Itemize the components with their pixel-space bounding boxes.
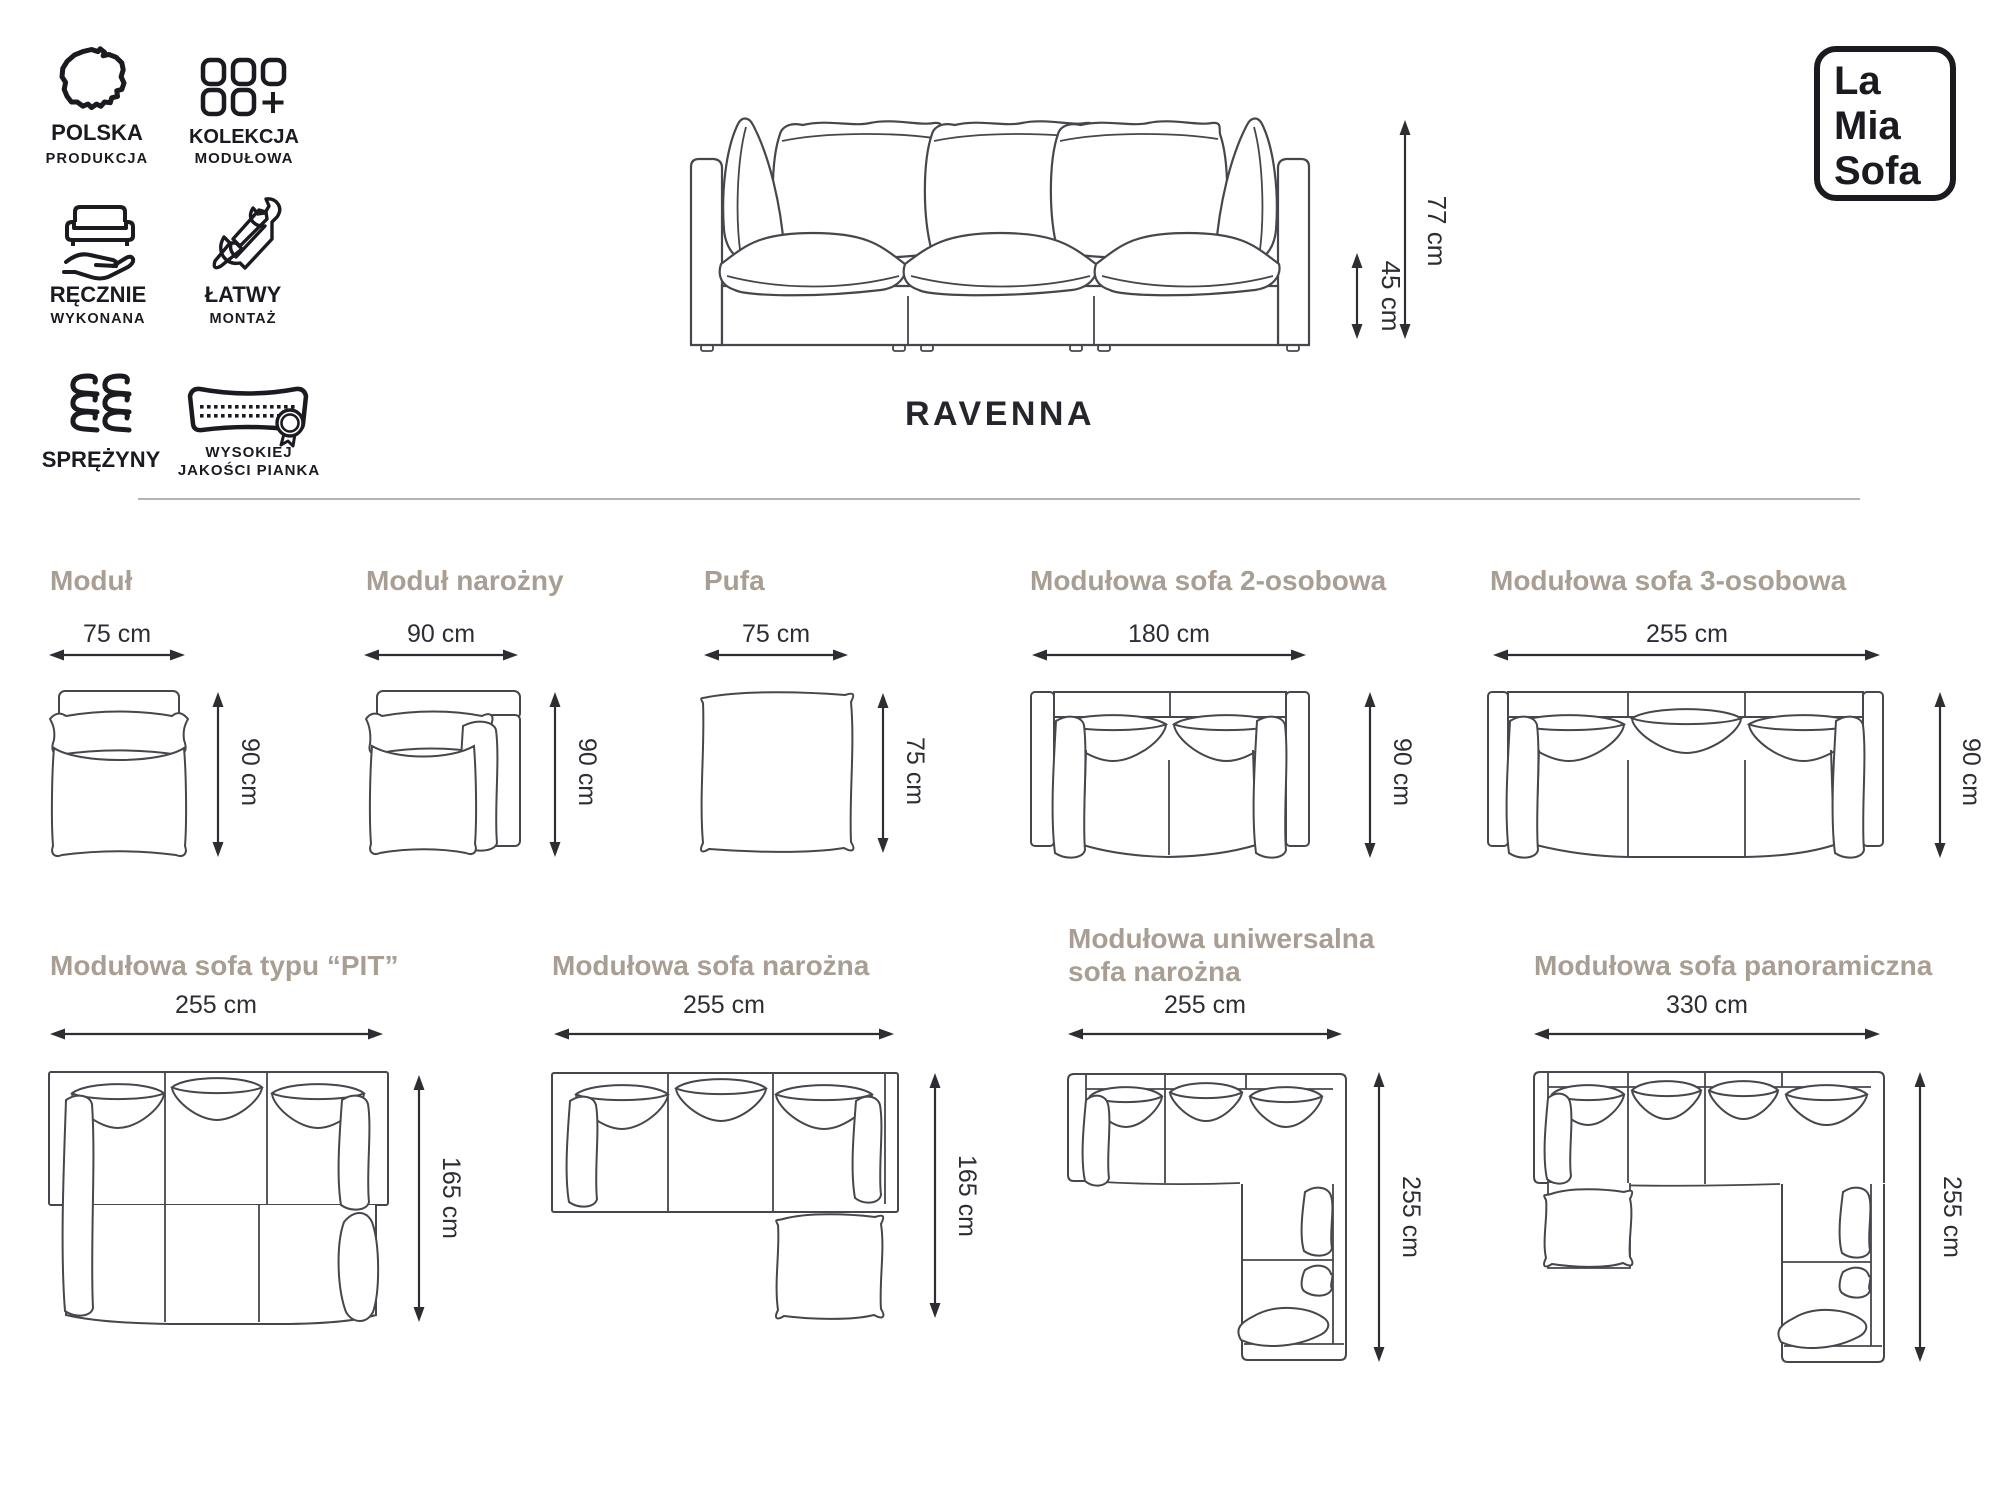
svg-text:165 cm: 165 cm — [437, 1157, 465, 1239]
svg-text:Modułowa sofa narożna: Modułowa sofa narożna — [552, 950, 870, 981]
svg-text:sofa narożna: sofa narożna — [1068, 956, 1241, 987]
svg-text:La: La — [1834, 59, 1881, 103]
svg-text:RĘCZNIE: RĘCZNIE — [50, 282, 147, 307]
svg-text:PRODUKCJA: PRODUKCJA — [46, 151, 149, 167]
svg-text:75 cm: 75 cm — [742, 620, 810, 648]
svg-text:JAKOŚCI PIANKA: JAKOŚCI PIANKA — [178, 461, 320, 479]
svg-text:255 cm: 255 cm — [175, 991, 257, 1019]
svg-text:255 cm: 255 cm — [1397, 1176, 1425, 1258]
svg-text:75 cm: 75 cm — [901, 737, 929, 805]
svg-text:255 cm: 255 cm — [683, 991, 765, 1019]
svg-text:Modułowa sofa typu “PIT”: Modułowa sofa typu “PIT” — [50, 950, 398, 981]
svg-text:RAVENNA: RAVENNA — [905, 395, 1095, 433]
svg-text:SPRĘŻYNY: SPRĘŻYNY — [42, 447, 161, 472]
svg-text:Modułowa sofa 2-osobowa: Modułowa sofa 2-osobowa — [1030, 565, 1387, 596]
svg-text:77 cm: 77 cm — [1422, 196, 1452, 267]
svg-text:255 cm: 255 cm — [1646, 620, 1728, 648]
svg-text:330 cm: 330 cm — [1666, 991, 1748, 1019]
svg-text:Sofa: Sofa — [1834, 149, 1921, 193]
svg-text:Modułowa sofa panoramiczna: Modułowa sofa panoramiczna — [1534, 950, 1933, 981]
svg-text:MODUŁOWA: MODUŁOWA — [195, 150, 294, 167]
svg-text:180 cm: 180 cm — [1128, 620, 1210, 648]
svg-text:POLSKA: POLSKA — [51, 120, 143, 145]
svg-text:90 cm: 90 cm — [407, 620, 475, 648]
svg-text:Moduł: Moduł — [50, 565, 133, 596]
svg-text:MONTAŻ: MONTAŻ — [210, 310, 277, 327]
svg-text:90 cm: 90 cm — [573, 738, 601, 806]
svg-text:Mia: Mia — [1834, 104, 1901, 148]
svg-text:90 cm: 90 cm — [1957, 738, 1985, 806]
svg-text:KOLEKCJA: KOLEKCJA — [189, 126, 299, 148]
svg-text:Modułowa uniwersalna: Modułowa uniwersalna — [1068, 923, 1375, 954]
svg-text:ŁATWY: ŁATWY — [205, 282, 282, 307]
svg-text:75 cm: 75 cm — [83, 620, 151, 648]
svg-text:90 cm: 90 cm — [1388, 738, 1416, 806]
svg-text:255 cm: 255 cm — [1164, 991, 1246, 1019]
svg-text:WYKONANA: WYKONANA — [51, 311, 146, 327]
svg-text:WYSOKIEJ: WYSOKIEJ — [205, 444, 292, 461]
svg-text:Pufa: Pufa — [704, 565, 765, 596]
svg-text:255 cm: 255 cm — [1938, 1176, 1966, 1258]
svg-text:Moduł narożny: Moduł narożny — [366, 565, 564, 596]
svg-text:165 cm: 165 cm — [953, 1155, 981, 1237]
svg-text:45 cm: 45 cm — [1376, 261, 1406, 332]
svg-text:Modułowa sofa 3-osobowa: Modułowa sofa 3-osobowa — [1490, 565, 1847, 596]
svg-text:90 cm: 90 cm — [236, 738, 264, 806]
